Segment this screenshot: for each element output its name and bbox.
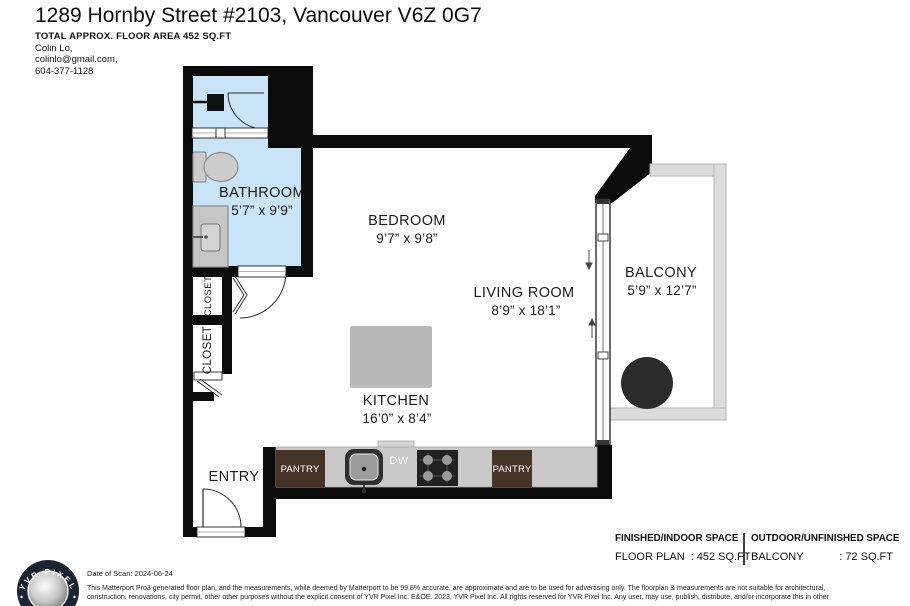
logo-star-left (20, 596, 22, 598)
sliding-door (586, 199, 610, 445)
bedroom-dims: 9’7” x 9’8” (376, 231, 437, 246)
disclaimer-line-1: This Matterport Pro3 generated floor pla… (87, 584, 829, 593)
wall-left-outer (183, 66, 193, 537)
wall-kitchen-bottom (276, 487, 612, 499)
bedroom-label: BEDROOM (368, 213, 446, 229)
floor-plan-area-row: FLOOR PLAN :452 SQ.FT (615, 551, 737, 563)
pantry-right-label: PANTRY (493, 464, 532, 475)
wall-bathroom-right (301, 140, 313, 277)
wall-bedroom-top (296, 135, 652, 148)
wall-bathroom-bottom-right (285, 266, 313, 277)
balcony-dims: 5’9” x 12’7” (627, 283, 696, 298)
scan-date: Date of Scan: 2024-06-24 (87, 569, 173, 578)
bathroom-label: BATHROOM (219, 185, 305, 201)
balcony-area-label: BALCONY (751, 551, 804, 563)
wall-bottom-right-corner (595, 445, 612, 499)
disclaimer: This Matterport Pro3 generated floor pla… (87, 584, 829, 602)
closet-upper-label: CLOSET (203, 276, 214, 316)
wall-closet-lower-stub (192, 392, 214, 401)
wall-closet-lower-right (222, 325, 232, 374)
outdoor-space-header: OUTDOOR/UNFINISHED SPACE (751, 533, 893, 544)
wall-entry-kitchen-divider (263, 447, 276, 537)
outdoor-space-column: OUTDOOR/UNFINISHED SPACE BALCONY :72 SQ.… (751, 533, 893, 563)
wall-closet-upper-right (222, 273, 232, 325)
balcony-wall-bottom (607, 408, 726, 420)
kitchen-dims: 16’0” x 8’4” (362, 411, 431, 426)
slide-direction-arrows (586, 250, 595, 338)
floor-plan-page: 1289 Hornby Street #2103, Vancouver V6Z … (0, 0, 910, 606)
balcony-area-value: 72 SQ.FT (845, 551, 893, 563)
entry-door (197, 489, 245, 537)
entry-label: ENTRY (209, 469, 260, 485)
floor-plan-drawing: BATHROOM 5’7” x 9’9” BEDROOM 9’7” x 9’8”… (0, 0, 910, 606)
indoor-separator: : (691, 551, 694, 563)
logo-star-right (73, 596, 75, 598)
disclaimer-line-2: construction, renovations, city permit, … (87, 593, 829, 602)
area-summary: FINISHED/INDOOR SPACE FLOOR PLAN :452 SQ… (615, 533, 893, 565)
wall-diagonal-corner (595, 148, 652, 203)
balcony-area-row: BALCONY :72 SQ.FT (751, 551, 893, 563)
vanity-sink-icon (193, 206, 228, 267)
pantry-left-label: PANTRY (281, 464, 320, 475)
summary-divider (743, 533, 745, 565)
yvr-pixel-logo: YVR PIXEL (12, 557, 84, 606)
balcony-wall-right (714, 164, 726, 420)
living-room-label: LIVING ROOM (473, 285, 574, 301)
balcony-label: BALCONY (625, 265, 697, 281)
closet-lower-label: CLOSET (202, 326, 214, 374)
floor-plan-area-label: FLOOR PLAN (615, 551, 685, 563)
bathroom-dims: 5’7” x 9’9” (231, 203, 292, 218)
indoor-space-column: FINISHED/INDOOR SPACE FLOOR PLAN :452 SQ… (615, 533, 737, 563)
indoor-space-header: FINISHED/INDOOR SPACE (615, 533, 737, 544)
kitchen-label: KITCHEN (363, 393, 429, 409)
toilet-icon (193, 152, 238, 182)
outdoor-separator: : (839, 551, 842, 563)
living-room-dims: 8’9” x 18’1” (491, 303, 560, 318)
kitchen-island (350, 326, 432, 388)
shower-glass-panel (192, 128, 268, 138)
stove-icon (417, 450, 458, 486)
dishwasher-label: DW (389, 455, 408, 467)
balcony-table-icon (621, 357, 673, 409)
